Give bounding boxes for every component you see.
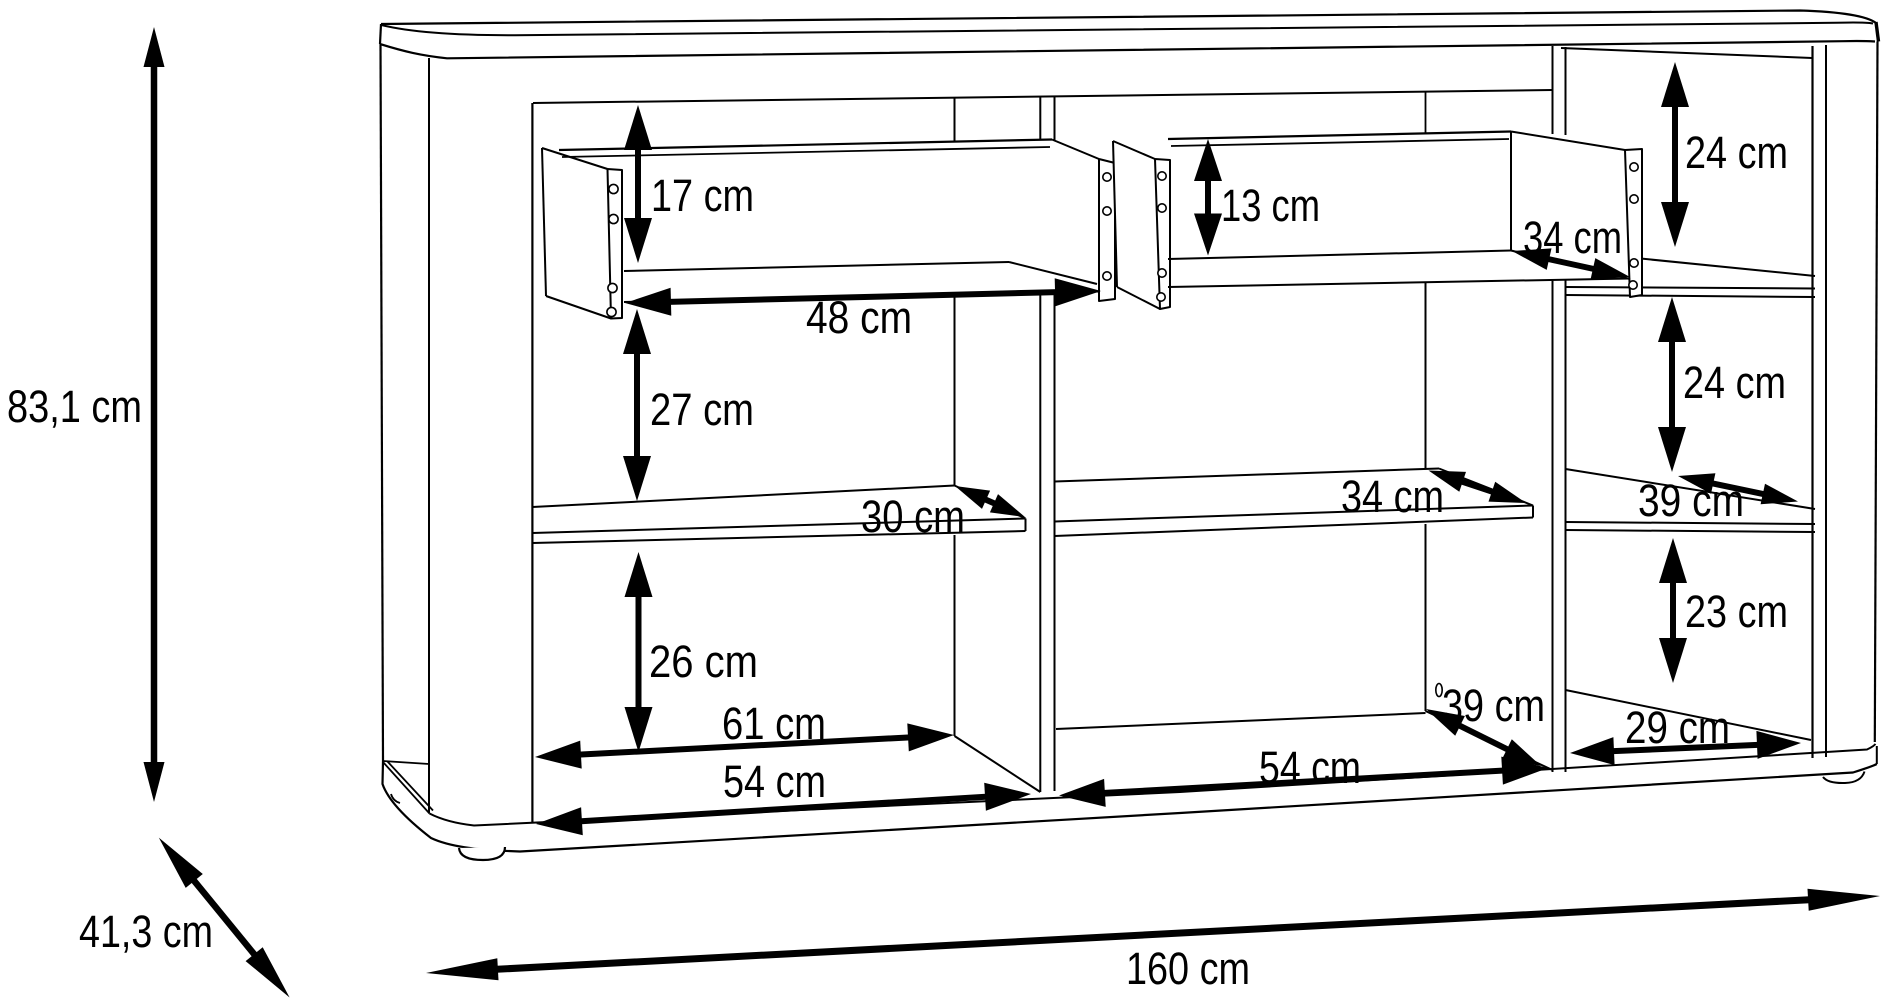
svg-text:39 cm: 39 cm bbox=[1638, 475, 1744, 526]
svg-text:54 cm: 54 cm bbox=[723, 756, 826, 807]
svg-text:24 cm: 24 cm bbox=[1685, 127, 1788, 178]
svg-text:83,1 cm: 83,1 cm bbox=[7, 381, 142, 432]
svg-text:34 cm: 34 cm bbox=[1523, 212, 1622, 263]
svg-text:160 cm: 160 cm bbox=[1126, 943, 1250, 994]
svg-text:30 cm: 30 cm bbox=[861, 491, 965, 542]
svg-text:61 cm: 61 cm bbox=[722, 698, 826, 749]
svg-text:39 cm: 39 cm bbox=[1442, 680, 1545, 731]
svg-text:13 cm: 13 cm bbox=[1221, 180, 1320, 231]
svg-text:48 cm: 48 cm bbox=[806, 292, 912, 343]
svg-text:27 cm: 27 cm bbox=[650, 384, 754, 435]
svg-text:34 cm: 34 cm bbox=[1341, 471, 1444, 522]
svg-text:41,3 cm: 41,3 cm bbox=[79, 906, 213, 957]
svg-text:54 cm: 54 cm bbox=[1259, 742, 1361, 793]
svg-text:17 cm: 17 cm bbox=[651, 170, 754, 221]
svg-text:23 cm: 23 cm bbox=[1685, 586, 1788, 637]
svg-text:29 cm: 29 cm bbox=[1625, 702, 1730, 753]
svg-text:26 cm: 26 cm bbox=[649, 636, 758, 687]
svg-text:24 cm: 24 cm bbox=[1683, 357, 1786, 408]
